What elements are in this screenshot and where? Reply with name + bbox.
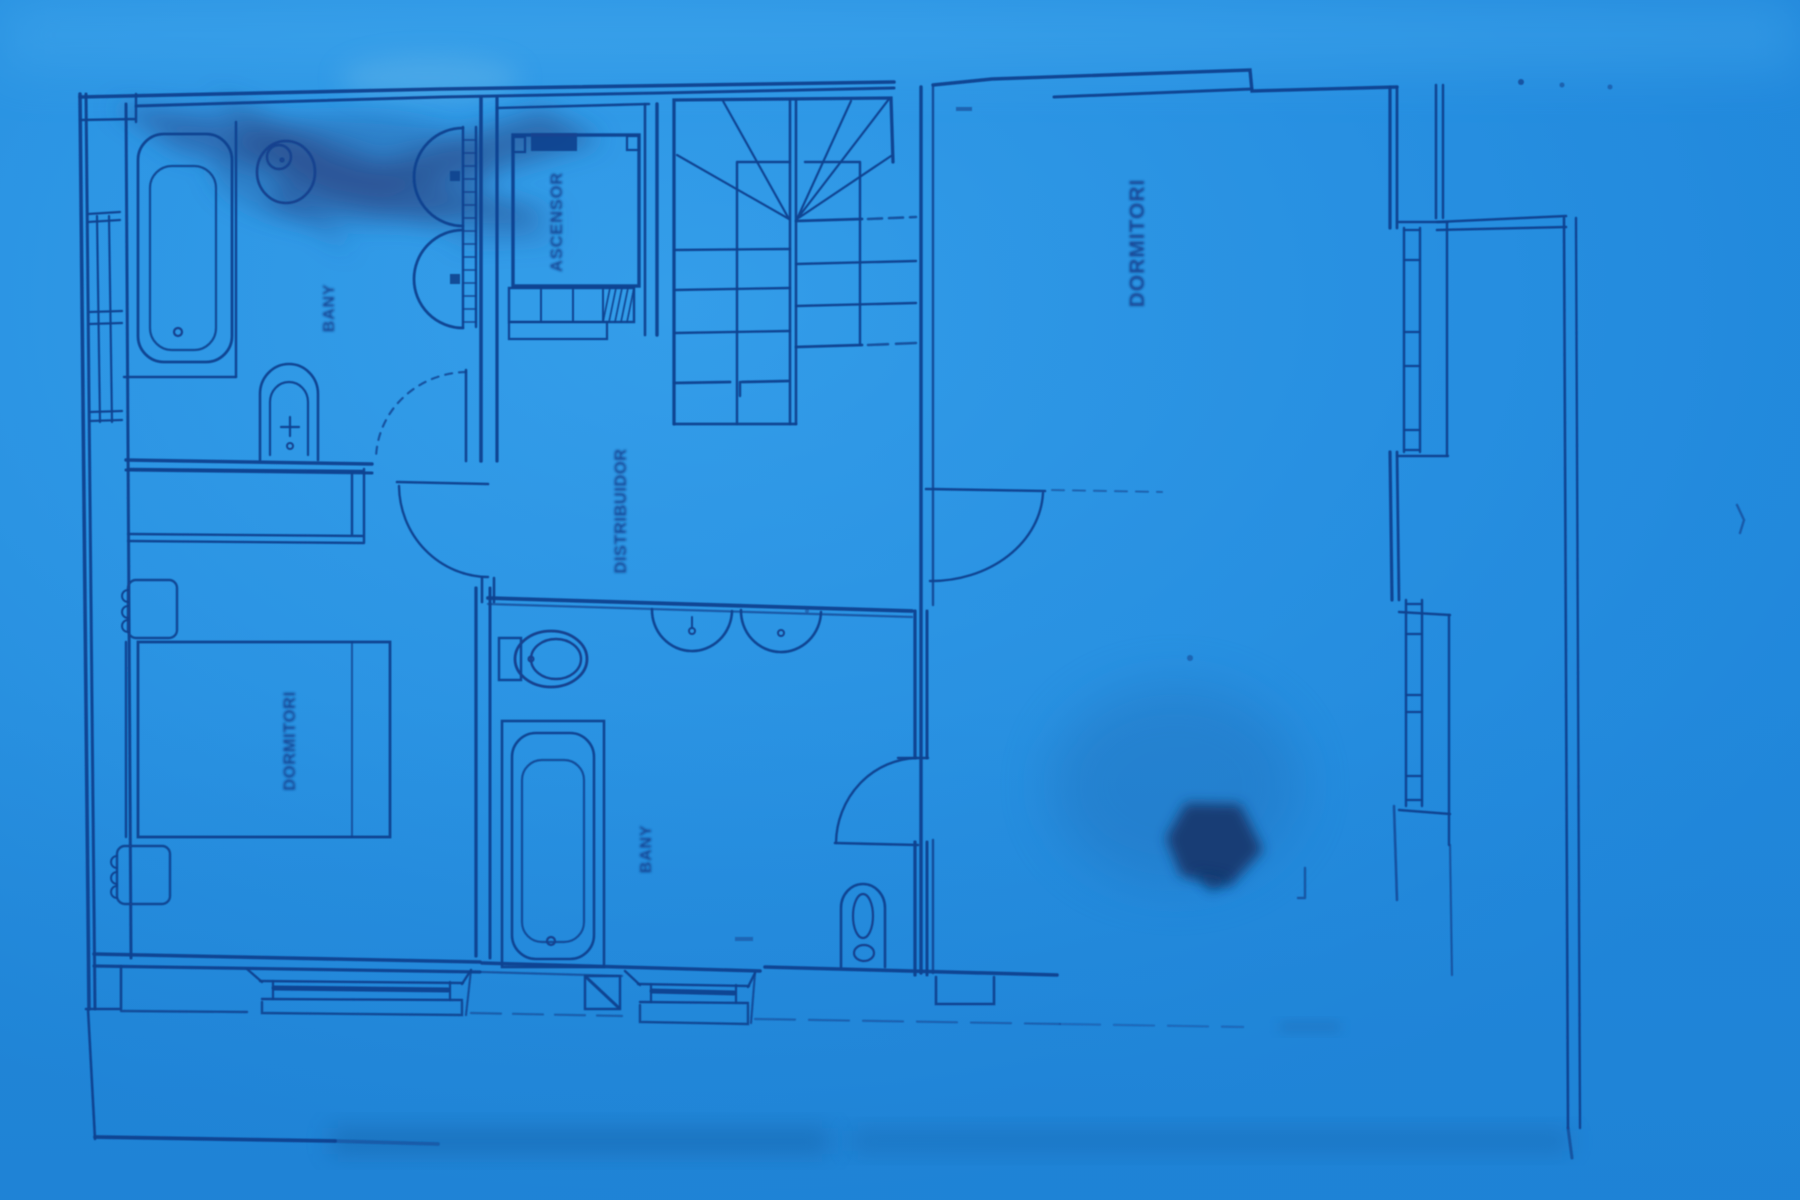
svg-text:DORMITORI: DORMITORI [1126, 179, 1149, 308]
svg-text:DORMITORI: DORMITORI [281, 691, 299, 791]
svg-text:BANY: BANY [321, 284, 338, 333]
svg-text:BANY: BANY [638, 825, 655, 874]
svg-text:ASCENSOR: ASCENSOR [548, 172, 566, 272]
svg-text:DISTRIBUIDOR: DISTRIBUIDOR [612, 448, 630, 573]
